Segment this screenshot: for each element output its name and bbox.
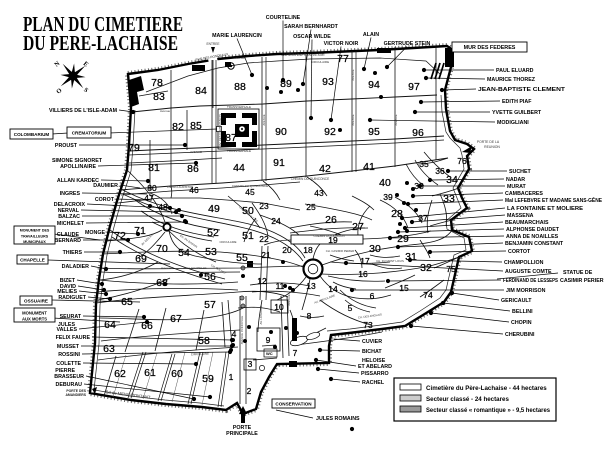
svg-text:AMANDIERS: AMANDIERS — [65, 393, 86, 397]
svg-text:AV. LATERALE: AV. LATERALE — [259, 305, 263, 324]
svg-text:APOLLINAIRE: APOLLINAIRE — [60, 164, 96, 170]
svg-text:SUCHET: SUCHET — [509, 169, 532, 175]
svg-text:5: 5 — [348, 303, 353, 313]
svg-text:MICHELET: MICHELET — [57, 221, 85, 227]
svg-text:de la CHAPELLE: de la CHAPELLE — [183, 266, 206, 270]
svg-text:AV. DES COMBATTANTS: AV. DES COMBATTANTS — [218, 114, 222, 146]
svg-text:RACHEL: RACHEL — [362, 380, 385, 386]
svg-text:55: 55 — [236, 252, 248, 264]
svg-text:27: 27 — [352, 221, 364, 233]
svg-text:16: 16 — [358, 269, 368, 279]
svg-text:71: 71 — [134, 225, 146, 237]
svg-text:GERTRUDE STEIN: GERTRUDE STEIN — [384, 41, 431, 47]
svg-text:83: 83 — [153, 91, 165, 103]
svg-text:3: 3 — [248, 359, 253, 369]
svg-text:STATUE DE: STATUE DE — [563, 270, 593, 276]
svg-text:70: 70 — [156, 243, 168, 255]
svg-text:74: 74 — [423, 290, 433, 300]
svg-text:JIM MORRISON: JIM MORRISON — [506, 288, 546, 294]
svg-text:52: 52 — [207, 227, 219, 239]
svg-text:Secteur classé « romantique »: Secteur classé « romantique » - 9,5 hect… — [426, 407, 551, 414]
svg-text:41: 41 — [363, 161, 375, 173]
svg-text:94: 94 — [368, 79, 380, 91]
svg-text:17: 17 — [360, 256, 370, 266]
svg-text:COLOMBARIUM: COLOMBARIUM — [14, 132, 50, 137]
svg-text:13: 13 — [306, 281, 316, 291]
svg-text:CHEMIN DU QUINCONCE: CHEMIN DU QUINCONCE — [291, 177, 329, 181]
svg-text:1: 1 — [229, 372, 234, 382]
svg-text:Avenue: Avenue — [160, 109, 170, 113]
svg-text:85: 85 — [190, 120, 202, 132]
svg-text:Avenue: Avenue — [161, 266, 171, 270]
svg-text:95: 95 — [368, 126, 380, 138]
svg-text:CHEMIN DU QUINCONCE: CHEMIN DU QUINCONCE — [232, 184, 268, 188]
svg-text:82: 82 — [172, 121, 184, 133]
svg-text:57: 57 — [204, 299, 216, 311]
svg-text:45: 45 — [245, 187, 255, 197]
svg-text:2: 2 — [247, 386, 252, 396]
svg-text:AVENUE: AVENUE — [262, 114, 266, 125]
svg-text:CREMATORIUM: CREMATORIUM — [72, 130, 107, 135]
svg-text:80: 80 — [147, 183, 157, 193]
svg-text:INGRES: INGRES — [60, 191, 81, 197]
svg-text:Avenue: Avenue — [235, 56, 245, 60]
svg-text:Secteur classé - 24 hectares: Secteur classé - 24 hectares — [426, 396, 509, 403]
svg-text:49: 49 — [208, 203, 220, 215]
svg-text:CAMBACERES: CAMBACERES — [505, 191, 543, 197]
svg-text:90: 90 — [275, 126, 287, 138]
svg-text:92: 92 — [324, 126, 336, 138]
svg-text:MARIE LAURENCIN: MARIE LAURENCIN — [212, 33, 262, 39]
svg-text:CASIMIR PERIER: CASIMIR PERIER — [560, 278, 604, 284]
svg-text:65: 65 — [121, 296, 133, 308]
svg-text:40: 40 — [379, 177, 391, 189]
svg-text:BALZAC: BALZAC — [58, 214, 80, 220]
svg-text:73: 73 — [363, 320, 373, 330]
svg-text:JULES ROMAINS: JULES ROMAINS — [316, 416, 360, 422]
svg-text:TRANSVERSALE: TRANSVERSALE — [227, 105, 251, 109]
svg-text:AVENUE: AVENUE — [351, 114, 355, 125]
svg-text:CH. DU MONT LOUIS: CH. DU MONT LOUIS — [376, 259, 404, 263]
svg-text:JARDIN DU SOUVENIR: JARDIN DU SOUVENIR — [281, 52, 324, 57]
svg-text:MONUMENT DES: MONUMENT DES — [20, 229, 50, 233]
svg-text:MASSENA: MASSENA — [507, 213, 534, 219]
svg-text:76: 76 — [457, 156, 467, 166]
svg-text:CHERUBINI: CHERUBINI — [505, 332, 535, 338]
svg-text:NADAR: NADAR — [506, 177, 525, 183]
svg-text:FELIX FAURE: FELIX FAURE — [56, 335, 91, 341]
svg-text:MONGE: MONGE — [85, 230, 105, 236]
svg-text:24: 24 — [271, 216, 281, 226]
svg-text:PAUL ELUARD: PAUL ELUARD — [496, 68, 534, 74]
svg-text:Chemin LAURISTON: Chemin LAURISTON — [167, 185, 193, 189]
svg-text:58: 58 — [198, 335, 210, 347]
svg-text:DEBURAU: DEBURAU — [56, 382, 83, 388]
svg-text:15: 15 — [399, 283, 409, 293]
svg-text:YVETTE GUILBERT: YVETTE GUILBERT — [492, 110, 542, 116]
svg-text:CHAMPOLLION: CHAMPOLLION — [504, 260, 544, 266]
svg-text:87: 87 — [225, 132, 237, 144]
svg-text:COURTELINE: COURTELINE — [266, 15, 301, 21]
svg-text:ET ABELARD: ET ABELARD — [358, 364, 392, 370]
svg-text:JEAN-BAPTISTE CLEMENT: JEAN-BAPTISTE CLEMENT — [478, 87, 566, 93]
svg-text:REUNION: REUNION — [484, 145, 500, 149]
svg-text:7: 7 — [293, 348, 298, 358]
svg-text:COLETTE: COLETTE — [56, 361, 81, 367]
svg-text:EDITH PIAF: EDITH PIAF — [502, 99, 532, 105]
svg-text:59: 59 — [202, 373, 214, 385]
svg-text:CIRCULAIRE: CIRCULAIRE — [220, 240, 237, 244]
svg-text:32: 32 — [420, 262, 432, 274]
svg-text:AVENUE: AVENUE — [351, 69, 355, 80]
svg-text:BELLINI: BELLINI — [512, 309, 533, 315]
svg-text:56: 56 — [204, 271, 216, 283]
svg-text:51: 51 — [242, 230, 254, 242]
svg-text:43: 43 — [314, 188, 324, 198]
svg-text:96: 96 — [412, 127, 424, 139]
svg-text:PISSARRO: PISSARRO — [361, 371, 389, 377]
svg-text:BEAUMARCHAIS: BEAUMARCHAIS — [505, 220, 549, 226]
svg-text:COROT: COROT — [95, 197, 115, 203]
svg-text:AVENUE: AVENUE — [287, 294, 291, 305]
svg-text:61: 61 — [144, 367, 156, 379]
svg-text:14: 14 — [328, 284, 338, 294]
svg-text:PROUST: PROUST — [55, 143, 78, 149]
svg-text:WC: WC — [266, 351, 273, 356]
svg-text:ALPHONSE DAUDET: ALPHONSE DAUDET — [506, 227, 560, 233]
svg-text:MUR DES FEDERES: MUR DES FEDERES — [464, 45, 516, 51]
svg-text:8: 8 — [307, 311, 312, 321]
svg-text:CHAPELLE: CHAPELLE — [20, 257, 45, 262]
svg-text:ENTREE: ENTREE — [207, 42, 220, 46]
svg-text:BRASSEUR: BRASSEUR — [54, 374, 84, 380]
svg-text:84: 84 — [195, 85, 207, 97]
svg-text:BICHAT: BICHAT — [362, 349, 382, 355]
svg-text:OSCAR WILDE: OSCAR WILDE — [293, 34, 331, 40]
svg-text:OSSUAIRE: OSSUAIRE — [24, 298, 48, 303]
svg-text:54: 54 — [178, 247, 190, 259]
svg-text:30: 30 — [369, 243, 381, 255]
svg-text:CHEMIN DU DRAGON: CHEMIN DU DRAGON — [313, 234, 344, 238]
svg-text:AVENUE: AVENUE — [394, 114, 398, 125]
svg-text:CONSERVATION: CONSERVATION — [275, 401, 312, 406]
svg-text:ALAIN: ALAIN — [363, 32, 379, 38]
svg-text:FERDINAND DE LESSEPS: FERDINAND DE LESSEPS — [503, 278, 558, 284]
svg-text:MURAT: MURAT — [507, 184, 526, 190]
svg-text:BERNARD: BERNARD — [55, 238, 82, 244]
svg-text:62: 62 — [114, 368, 126, 380]
svg-text:39: 39 — [383, 192, 393, 202]
svg-text:36: 36 — [435, 166, 445, 176]
svg-text:60: 60 — [171, 368, 183, 380]
svg-text:67: 67 — [170, 313, 182, 325]
svg-text:VILLIERS DE L'ISLE-ADAM: VILLIERS DE L'ISLE-ADAM — [49, 108, 118, 114]
svg-text:MODIGLIANI: MODIGLIANI — [497, 120, 529, 126]
svg-text:35: 35 — [419, 159, 429, 169]
svg-text:79: 79 — [128, 142, 140, 154]
svg-text:VICTOR NOIR: VICTOR NOIR — [324, 41, 359, 47]
svg-text:4: 4 — [232, 329, 237, 339]
svg-text:ANNA DE NOAILLES: ANNA DE NOAILLES — [506, 234, 559, 240]
svg-text:PRINCIPALE: PRINCIPALE — [226, 431, 258, 437]
svg-text:26: 26 — [325, 214, 337, 226]
svg-text:GERICAULT: GERICAULT — [501, 298, 532, 304]
svg-text:47: 47 — [144, 193, 154, 203]
svg-text:53: 53 — [205, 246, 217, 258]
svg-text:CHOPIN: CHOPIN — [511, 320, 532, 326]
svg-text:DAUMIER: DAUMIER — [93, 183, 118, 189]
svg-text:97: 97 — [408, 81, 420, 93]
svg-text:34: 34 — [446, 174, 458, 186]
svg-text:72: 72 — [114, 230, 126, 242]
svg-text:6: 6 — [370, 291, 375, 301]
svg-text:88: 88 — [234, 81, 246, 93]
svg-text:CUVIER: CUVIER — [362, 339, 382, 345]
svg-text:AUX MORTS: AUX MORTS — [22, 317, 47, 322]
svg-text:MAURICE THOREZ: MAURICE THOREZ — [487, 77, 536, 83]
svg-text:9: 9 — [266, 335, 271, 345]
svg-text:MUSSET: MUSSET — [57, 344, 80, 350]
svg-text:BENJAMIN CONSTANT: BENJAMIN CONSTANT — [505, 241, 564, 247]
svg-text:Cimetière du Père-Lachaise - 4: Cimetière du Père-Lachaise - 44 hectares — [426, 385, 547, 392]
svg-text:PORTE DE LA: PORTE DE LA — [477, 140, 500, 144]
svg-text:ROSSINI: ROSSINI — [58, 352, 80, 358]
svg-text:21: 21 — [261, 250, 271, 260]
svg-text:VALLES: VALLES — [56, 327, 77, 333]
svg-text:LA FONTAINE ET MOLIERE: LA FONTAINE ET MOLIERE — [507, 206, 584, 212]
svg-text:TRANSVERSALE: TRANSVERSALE — [227, 149, 251, 153]
svg-text:TRAVAILLEURS: TRAVAILLEURS — [21, 234, 49, 238]
svg-text:44: 44 — [233, 162, 245, 174]
svg-text:93: 93 — [322, 76, 334, 88]
svg-text:75: 75 — [446, 264, 456, 274]
svg-text:86: 86 — [187, 163, 199, 175]
svg-text:42: 42 — [319, 163, 331, 175]
svg-text:10: 10 — [274, 302, 284, 312]
svg-text:29: 29 — [397, 233, 409, 245]
svg-text:CIRCULAIRE: CIRCULAIRE — [311, 60, 329, 64]
svg-text:22: 22 — [259, 234, 269, 244]
svg-text:18: 18 — [303, 245, 313, 255]
svg-text:MONUMENT: MONUMENT — [22, 310, 47, 315]
svg-text:CH. CASIMIR PERIER: CH. CASIMIR PERIER — [326, 249, 354, 253]
svg-text:91: 91 — [273, 157, 285, 169]
svg-text:MUNICIPAUX: MUNICIPAUX — [23, 240, 46, 244]
svg-text:CORTOT: CORTOT — [508, 249, 531, 255]
svg-text:Mal LEFEBVRE ET MADAME SANS-GÊ: Mal LEFEBVRE ET MADAME SANS-GÊNE — [505, 196, 602, 204]
svg-text:20: 20 — [282, 245, 292, 255]
svg-text:DU PERE-LACHAISE: DU PERE-LACHAISE — [23, 31, 178, 55]
svg-text:12: 12 — [257, 276, 267, 286]
svg-text:23: 23 — [259, 201, 269, 211]
svg-text:78: 78 — [151, 77, 163, 89]
svg-text:25: 25 — [306, 202, 316, 212]
svg-text:DALADIER: DALADIER — [62, 264, 90, 270]
svg-text:AVENUE: AVENUE — [190, 150, 202, 154]
svg-text:SARAH BERNHARDT: SARAH BERNHARDT — [284, 24, 339, 30]
svg-text:THIERS: THIERS — [63, 250, 83, 256]
